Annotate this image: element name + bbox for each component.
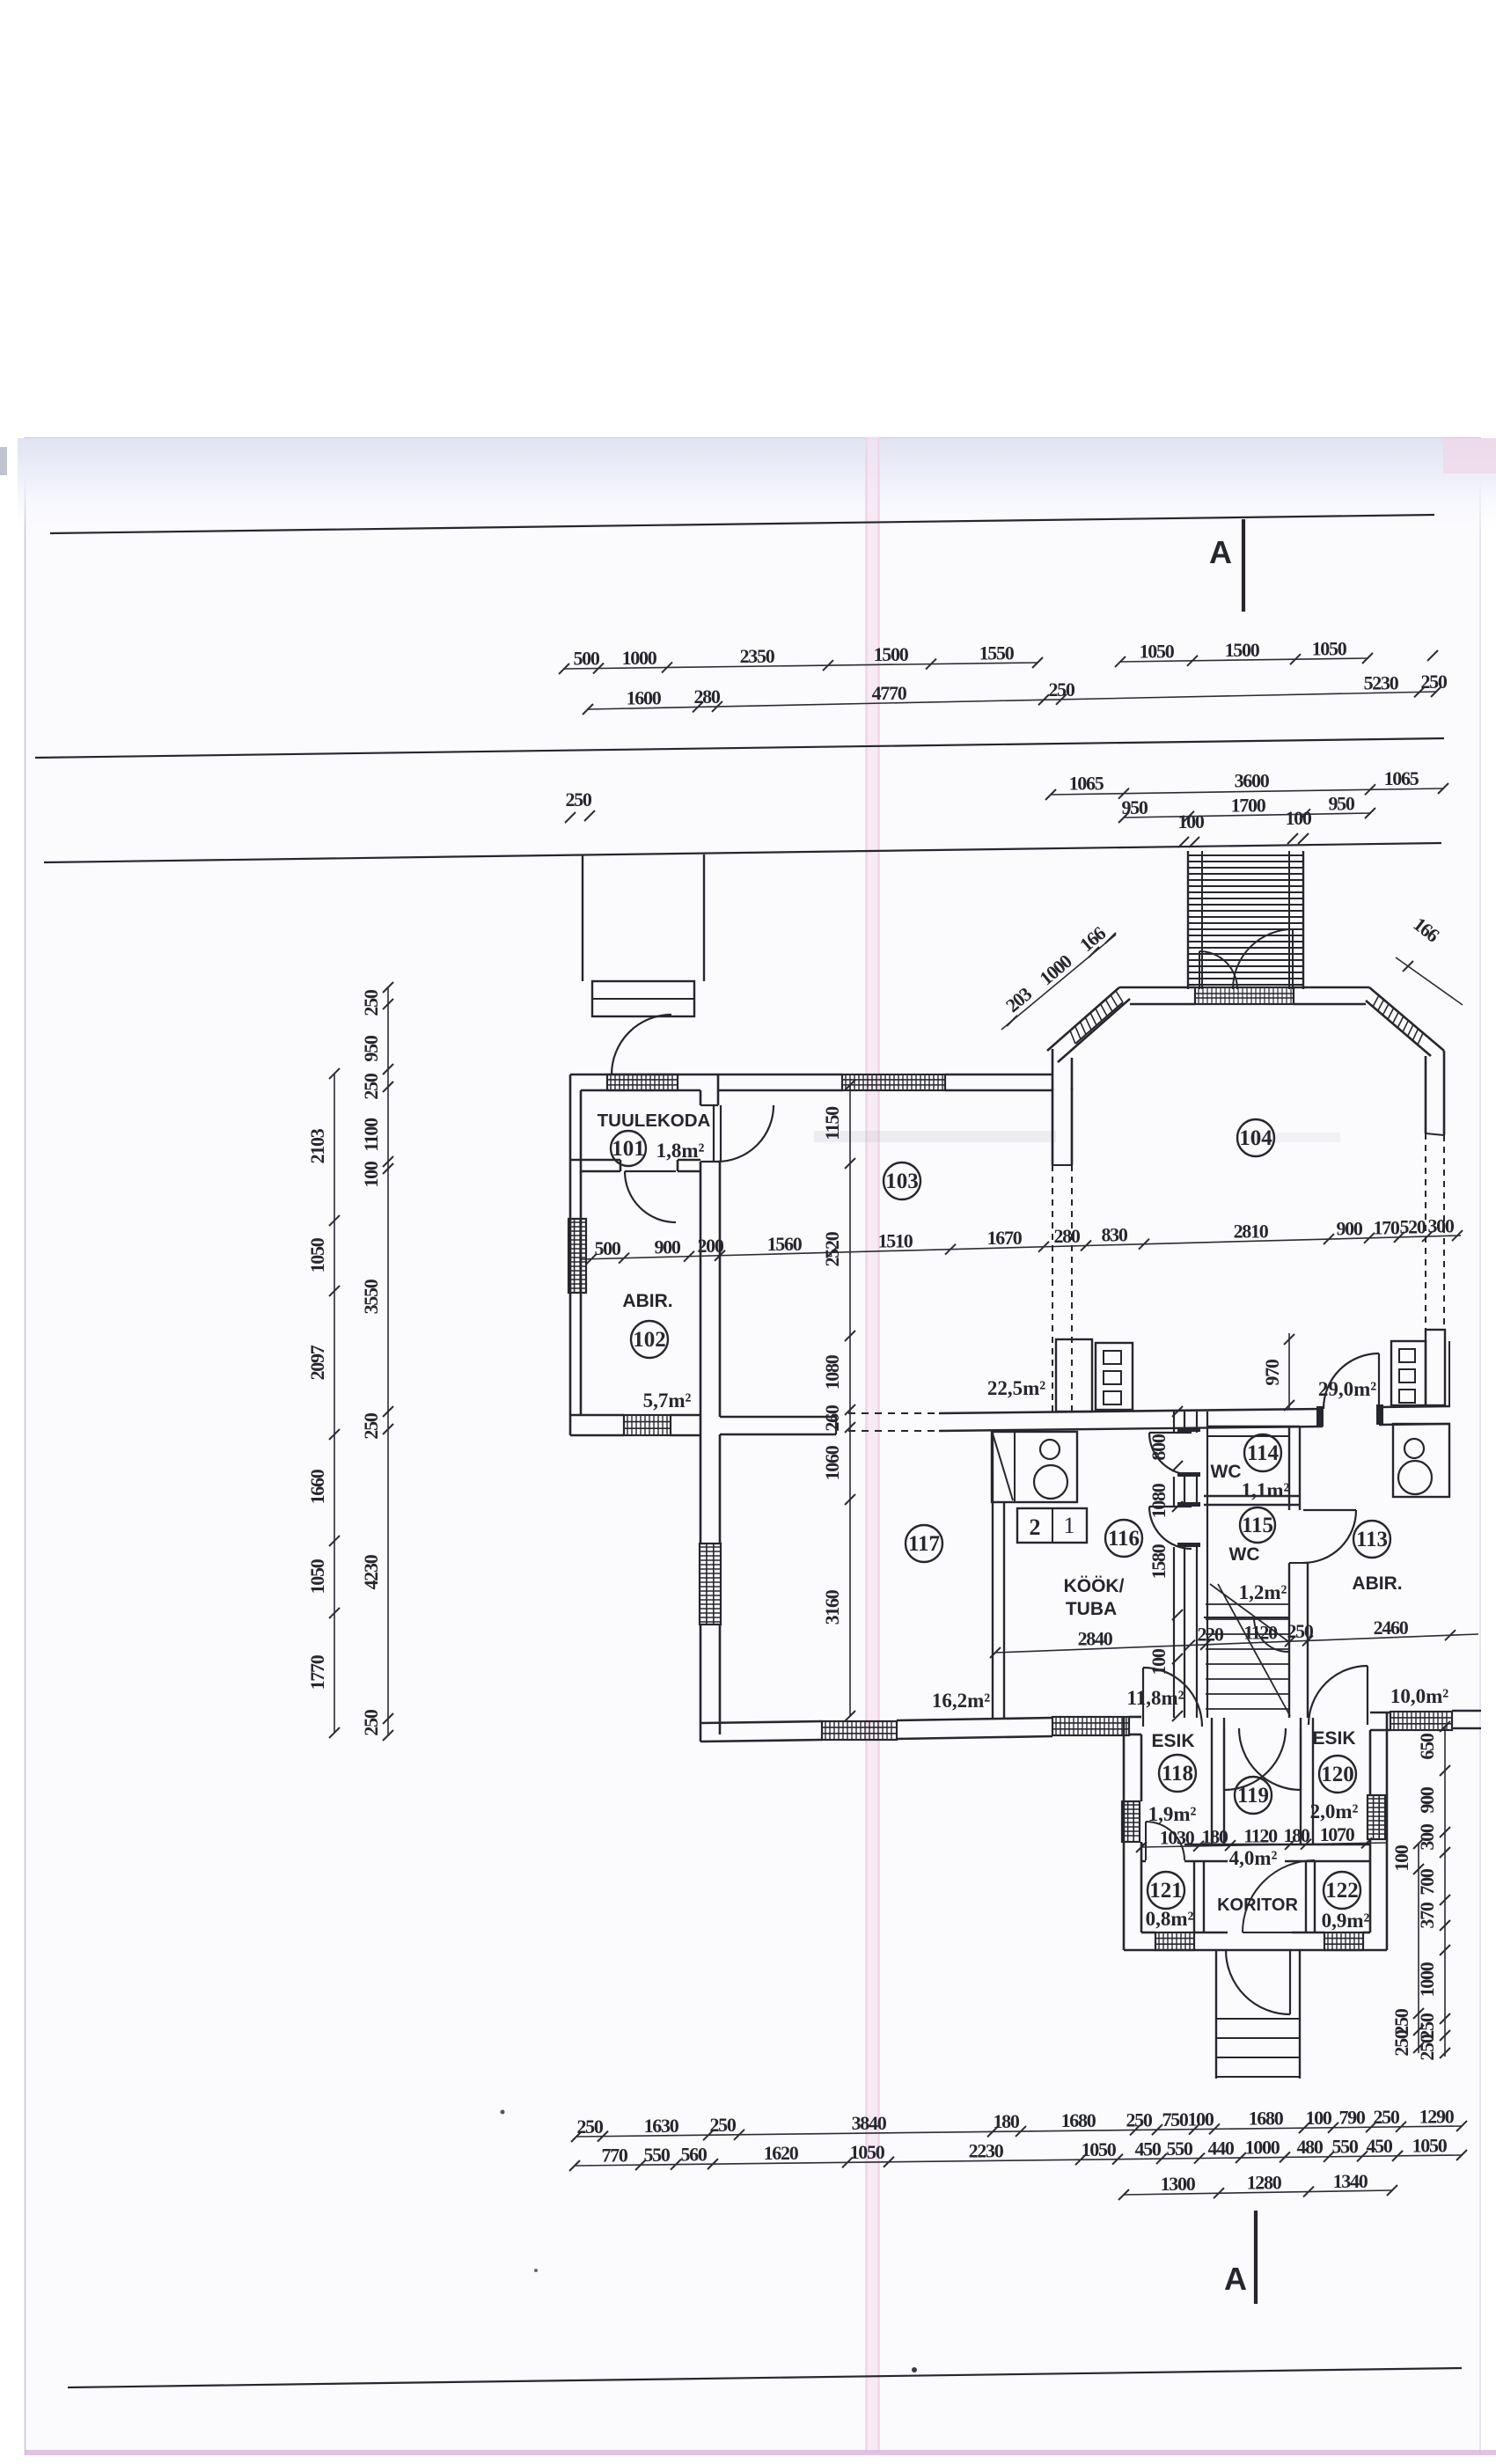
svg-text:1,9m²: 1,9m² bbox=[1148, 1803, 1197, 1825]
svg-text:260: 260 bbox=[821, 1404, 843, 1431]
svg-text:3840: 3840 bbox=[852, 2112, 887, 2134]
svg-text:250: 250 bbox=[565, 788, 591, 810]
svg-text:180: 180 bbox=[1283, 1824, 1309, 1846]
svg-text:480: 480 bbox=[1296, 2136, 1323, 2158]
svg-text:1300: 1300 bbox=[1161, 2173, 1196, 2195]
svg-text:750: 750 bbox=[1162, 2108, 1188, 2130]
svg-text:120: 120 bbox=[1321, 1763, 1354, 1786]
svg-text:100: 100 bbox=[1285, 807, 1311, 829]
svg-text:250: 250 bbox=[1373, 2106, 1399, 2128]
svg-text:170: 170 bbox=[1373, 1216, 1399, 1238]
svg-text:1290: 1290 bbox=[1419, 2105, 1455, 2127]
svg-text:1510: 1510 bbox=[878, 1229, 913, 1251]
svg-text:3550: 3550 bbox=[360, 1279, 382, 1314]
svg-text:970: 970 bbox=[1261, 1359, 1283, 1385]
svg-text:1100: 1100 bbox=[360, 1118, 382, 1152]
svg-text:1620: 1620 bbox=[764, 2142, 799, 2164]
svg-text:250: 250 bbox=[360, 1709, 382, 1735]
svg-text:500: 500 bbox=[594, 1237, 620, 1259]
svg-text:900: 900 bbox=[1416, 1786, 1438, 1813]
svg-text:29,0m²: 29,0m² bbox=[1318, 1378, 1376, 1400]
svg-text:1670: 1670 bbox=[987, 1227, 1023, 1249]
svg-text:A: A bbox=[1224, 2261, 1247, 2297]
svg-text:100: 100 bbox=[1305, 2107, 1331, 2129]
svg-text:3600: 3600 bbox=[1235, 769, 1270, 791]
svg-text:3160: 3160 bbox=[821, 1589, 843, 1624]
svg-text:KORITOR: KORITOR bbox=[1217, 1896, 1298, 1915]
svg-text:1500: 1500 bbox=[1225, 639, 1260, 661]
svg-text:1600: 1600 bbox=[627, 687, 662, 709]
svg-text:280: 280 bbox=[1053, 1225, 1080, 1247]
svg-text:103: 103 bbox=[885, 1170, 919, 1193]
svg-text:250: 250 bbox=[709, 2114, 736, 2136]
svg-text:2840: 2840 bbox=[1078, 1628, 1113, 1650]
svg-text:1065: 1065 bbox=[1384, 767, 1419, 789]
svg-text:1080: 1080 bbox=[821, 1354, 843, 1390]
svg-text:300: 300 bbox=[1427, 1215, 1454, 1237]
svg-text:5230: 5230 bbox=[1364, 671, 1399, 693]
svg-text:121: 121 bbox=[1149, 1879, 1183, 1903]
svg-text:1,2m²: 1,2m² bbox=[1239, 1581, 1287, 1603]
svg-text:1,1m²: 1,1m² bbox=[1242, 1479, 1290, 1501]
svg-text:1060: 1060 bbox=[821, 1445, 843, 1480]
svg-text:4230: 4230 bbox=[360, 1554, 382, 1589]
svg-text:1340: 1340 bbox=[1333, 2170, 1368, 2192]
svg-text:119: 119 bbox=[1237, 1784, 1269, 1808]
svg-text:550: 550 bbox=[1331, 2136, 1358, 2158]
svg-text:250: 250 bbox=[360, 1412, 382, 1439]
svg-text:950: 950 bbox=[1121, 796, 1148, 818]
svg-text:117: 117 bbox=[908, 1532, 940, 1556]
svg-text:WC: WC bbox=[1211, 1462, 1242, 1482]
svg-text:118: 118 bbox=[1162, 1762, 1193, 1786]
svg-text:1680: 1680 bbox=[1249, 2108, 1284, 2130]
svg-text:10,0m²: 10,0m² bbox=[1390, 1685, 1448, 1707]
svg-text:KÖÖK/: KÖÖK/ bbox=[1064, 1576, 1125, 1596]
svg-text:ESIK: ESIK bbox=[1151, 1731, 1194, 1751]
svg-text:1680: 1680 bbox=[1061, 2109, 1096, 2131]
svg-text:250: 250 bbox=[1048, 678, 1074, 700]
svg-text:1660: 1660 bbox=[306, 1469, 328, 1504]
svg-text:115: 115 bbox=[1242, 1514, 1273, 1537]
svg-text:116: 116 bbox=[1108, 1527, 1140, 1551]
svg-text:ESIK: ESIK bbox=[1312, 1728, 1355, 1749]
svg-text:2520: 2520 bbox=[821, 1231, 843, 1266]
svg-text:0,8m²: 0,8m² bbox=[1146, 1908, 1194, 1930]
svg-text:650: 650 bbox=[1416, 1733, 1438, 1759]
svg-text:1050: 1050 bbox=[850, 2141, 885, 2163]
svg-text:830: 830 bbox=[1101, 1224, 1127, 1246]
svg-text:100: 100 bbox=[1187, 2108, 1214, 2130]
svg-text:250: 250 bbox=[576, 2116, 603, 2138]
svg-text:250: 250 bbox=[1126, 2108, 1152, 2130]
svg-text:770: 770 bbox=[601, 2144, 627, 2166]
svg-text:950: 950 bbox=[1328, 793, 1354, 815]
svg-text:1,8m²: 1,8m² bbox=[656, 1140, 705, 1162]
svg-text:1050: 1050 bbox=[306, 1558, 328, 1594]
svg-text:101: 101 bbox=[612, 1137, 645, 1161]
svg-text:1000: 1000 bbox=[622, 647, 657, 669]
svg-text:TUBA: TUBA bbox=[1066, 1599, 1117, 1619]
svg-text:900: 900 bbox=[654, 1236, 680, 1258]
svg-text:2097: 2097 bbox=[306, 1345, 328, 1380]
svg-text:790: 790 bbox=[1338, 2106, 1365, 2128]
svg-text:5,7m²: 5,7m² bbox=[643, 1390, 692, 1412]
svg-text:1000: 1000 bbox=[1245, 2137, 1280, 2159]
svg-text:250: 250 bbox=[1287, 1620, 1313, 1642]
svg-text:1065: 1065 bbox=[1069, 772, 1104, 794]
svg-text:950: 950 bbox=[360, 1035, 382, 1061]
svg-text:11,8m²: 11,8m² bbox=[1126, 1687, 1184, 1709]
svg-text:1560: 1560 bbox=[767, 1233, 803, 1255]
svg-text:1280: 1280 bbox=[1247, 2171, 1282, 2193]
svg-text:1050: 1050 bbox=[1140, 640, 1175, 662]
svg-text:900: 900 bbox=[1336, 1217, 1362, 1239]
svg-text:1770: 1770 bbox=[306, 1654, 328, 1690]
svg-text:114: 114 bbox=[1247, 1441, 1280, 1465]
svg-text:2,0m²: 2,0m² bbox=[1310, 1800, 1359, 1822]
svg-text:250: 250 bbox=[360, 1073, 382, 1099]
svg-text:250: 250 bbox=[1390, 2029, 1412, 2056]
svg-text:2810: 2810 bbox=[1234, 1220, 1269, 1242]
svg-text:4,0m²: 4,0m² bbox=[1229, 1847, 1278, 1869]
svg-text:2: 2 bbox=[1030, 1514, 1041, 1540]
svg-text:100: 100 bbox=[1177, 810, 1204, 832]
svg-text:104: 104 bbox=[1239, 1126, 1272, 1150]
svg-text:1050: 1050 bbox=[306, 1237, 328, 1272]
svg-text:1080: 1080 bbox=[1148, 1483, 1170, 1518]
svg-text:1630: 1630 bbox=[644, 2115, 679, 2137]
svg-text:450: 450 bbox=[1366, 2135, 1392, 2157]
svg-text:1700: 1700 bbox=[1231, 794, 1266, 816]
svg-text:550: 550 bbox=[643, 2144, 670, 2166]
svg-text:500: 500 bbox=[573, 648, 599, 670]
svg-text:180: 180 bbox=[993, 2110, 1019, 2132]
svg-text:440: 440 bbox=[1207, 2137, 1234, 2159]
svg-text:ABIR.: ABIR. bbox=[622, 1291, 672, 1311]
svg-text:450: 450 bbox=[1134, 2138, 1161, 2160]
svg-text:0,9m²: 0,9m² bbox=[1322, 1910, 1370, 1932]
svg-text:1580: 1580 bbox=[1148, 1544, 1170, 1579]
svg-text:1500: 1500 bbox=[874, 643, 909, 665]
svg-text:A: A bbox=[1209, 534, 1232, 570]
svg-text:ABIR.: ABIR. bbox=[1352, 1573, 1402, 1594]
svg-text:2460: 2460 bbox=[1374, 1617, 1409, 1639]
svg-text:1050: 1050 bbox=[1412, 2134, 1448, 2156]
svg-text:560: 560 bbox=[680, 2143, 707, 2165]
svg-text:1: 1 bbox=[1064, 1513, 1075, 1538]
svg-text:TUULEKODA: TUULEKODA bbox=[598, 1111, 711, 1131]
svg-text:520: 520 bbox=[1399, 1215, 1426, 1237]
svg-text:102: 102 bbox=[633, 1328, 666, 1352]
svg-text:113: 113 bbox=[1356, 1528, 1388, 1551]
svg-text:1050: 1050 bbox=[1082, 2138, 1117, 2160]
svg-text:100: 100 bbox=[1390, 1844, 1412, 1871]
svg-text:1150: 1150 bbox=[821, 1106, 843, 1140]
svg-text:250: 250 bbox=[360, 989, 382, 1016]
svg-text:2230: 2230 bbox=[969, 2139, 1004, 2161]
svg-text:4770: 4770 bbox=[872, 682, 907, 704]
svg-text:280: 280 bbox=[693, 686, 720, 708]
svg-text:250: 250 bbox=[1420, 671, 1447, 693]
svg-text:122: 122 bbox=[1325, 1879, 1359, 1903]
svg-text:1050: 1050 bbox=[1312, 638, 1347, 660]
svg-text:1070: 1070 bbox=[1320, 1823, 1355, 1845]
svg-text:16,2m²: 16,2m² bbox=[932, 1690, 990, 1712]
svg-text:2350: 2350 bbox=[740, 645, 775, 667]
svg-text:1550: 1550 bbox=[979, 642, 1015, 664]
svg-text:WC: WC bbox=[1229, 1544, 1260, 1565]
svg-text:550: 550 bbox=[1166, 2138, 1192, 2160]
svg-text:22,5m²: 22,5m² bbox=[987, 1377, 1045, 1399]
svg-text:2103: 2103 bbox=[306, 1128, 328, 1163]
svg-text:100: 100 bbox=[360, 1161, 382, 1187]
